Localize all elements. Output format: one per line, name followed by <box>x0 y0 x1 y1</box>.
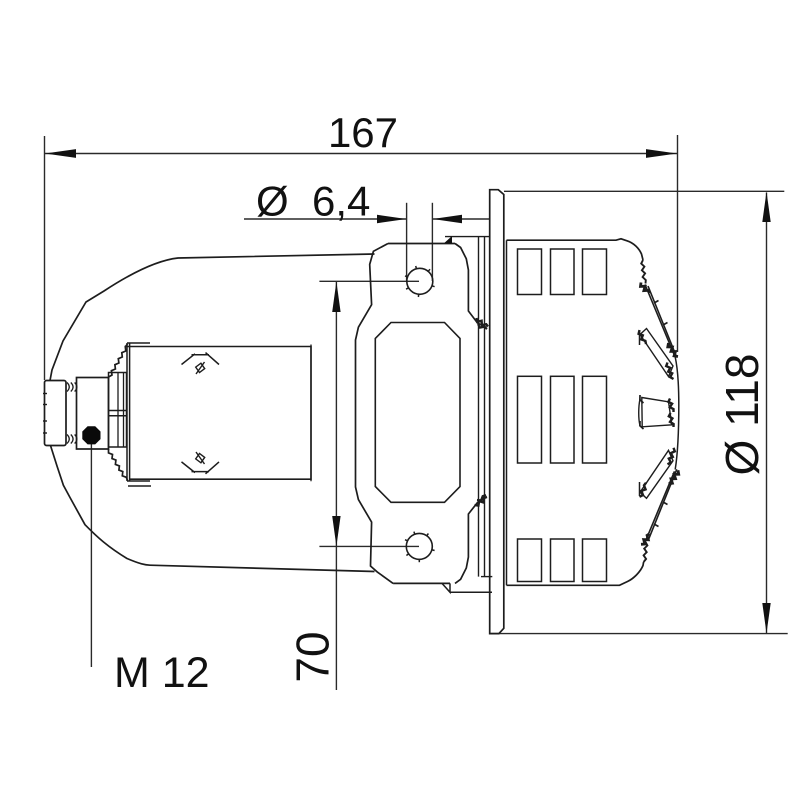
svg-text:Ø 118: Ø 118 <box>716 354 768 476</box>
svg-text:M 12: M 12 <box>114 649 210 697</box>
svg-text:Ø 6,4: Ø 6,4 <box>256 178 370 225</box>
svg-text:70: 70 <box>287 631 339 682</box>
svg-text:167: 167 <box>328 109 398 156</box>
